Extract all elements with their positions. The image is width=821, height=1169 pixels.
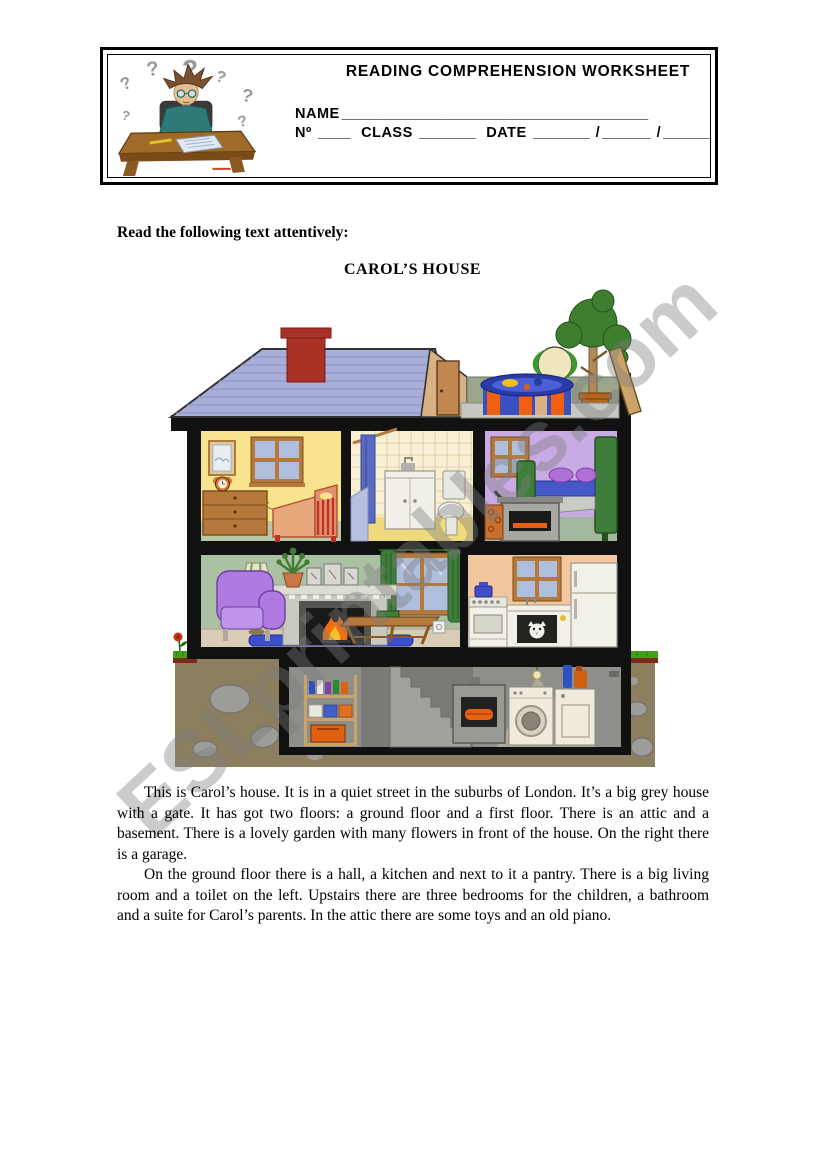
firewood-stack <box>485 505 503 539</box>
desk <box>119 131 255 176</box>
attic-gable <box>421 349 467 417</box>
class-label: CLASS <box>361 125 413 141</box>
bathroom <box>351 429 473 541</box>
red-flower <box>174 633 188 652</box>
date-blank-month: ______ <box>602 125 650 141</box>
wall-divider <box>460 541 468 651</box>
class-blank-line: _______ <box>419 125 475 141</box>
wood-stove <box>495 491 563 541</box>
date-label: DATE <box>486 125 526 141</box>
name-blank-line: ______________________________________ <box>342 106 648 122</box>
date-blank-day: _______ <box>533 125 589 141</box>
number-class-date-row: Nº ____ CLASS _______ DATE _______/_____… <box>295 125 718 141</box>
roof-terrace <box>461 290 641 418</box>
name-label: NAME <box>295 106 340 122</box>
chest-of-drawers <box>203 491 267 535</box>
worksheet-header: ? ? ? ? ? ? ? ? <box>100 47 718 185</box>
question-mark-icon: ? <box>145 58 160 82</box>
sink-counter <box>507 599 571 647</box>
kitchen-window <box>513 557 561 601</box>
living-room <box>201 548 465 647</box>
children-bedroom <box>201 431 341 542</box>
roof <box>171 328 467 417</box>
date-slash: / <box>596 125 601 141</box>
pool-toy <box>534 378 542 386</box>
number-label: Nº <box>295 125 312 141</box>
basement <box>279 659 631 755</box>
artist-credit <box>212 168 230 170</box>
fridge <box>571 563 617 647</box>
pillow <box>549 468 573 482</box>
date-blank-year: ______ <box>663 125 711 141</box>
question-mark-icon: ? <box>213 67 228 87</box>
wall-divider <box>341 431 351 541</box>
power-outlet <box>433 621 445 633</box>
framed-picture <box>209 441 235 475</box>
furnace <box>453 677 505 743</box>
pool-toy <box>524 384 530 390</box>
parents-bedroom <box>485 431 617 541</box>
question-mark-icon: ? <box>236 113 249 132</box>
confused-student-cartoon-icon: ? ? ? ? ? ? ? ? <box>111 56 261 178</box>
pool-toy-duck <box>502 379 518 387</box>
door-knob <box>440 390 443 393</box>
chick-toy <box>560 615 566 621</box>
attic-door <box>437 361 459 415</box>
passage-title: CAROL’S HOUSE <box>117 261 708 279</box>
worksheet-page: ? ? ? ? ? ? ? ? <box>0 0 821 1169</box>
washing-machine <box>509 687 553 745</box>
dryer <box>555 689 595 745</box>
kitchen <box>468 555 617 647</box>
book <box>377 611 399 617</box>
bedroom-window <box>249 437 305 487</box>
question-mark-icon: ? <box>117 72 134 94</box>
date-slash2: / <box>657 125 662 141</box>
reading-passage: This is Carol’s house. It is in a quiet … <box>117 783 709 927</box>
pillow <box>576 468 596 482</box>
name-row: NAME____________________________________… <box>295 106 654 122</box>
living-room-window <box>391 553 453 615</box>
chimney <box>281 328 331 382</box>
header-title: READING COMPREHENSION WORKSHEET <box>318 63 718 81</box>
toolbox <box>311 725 345 742</box>
wall-divider <box>473 431 485 541</box>
number-blank-line: ____ <box>318 125 350 141</box>
paddling-pool <box>481 347 577 415</box>
bathtub <box>351 487 368 541</box>
instruction-text: Read the following text attentively: <box>117 224 349 242</box>
question-mark-icon: ? <box>240 84 255 107</box>
basement-vent <box>609 671 619 677</box>
passage-paragraph: On the ground floor there is a hall, a k… <box>117 865 709 927</box>
house-cross-section-illustration <box>165 285 665 770</box>
passage-paragraph: This is Carol’s house. It is in a quiet … <box>117 783 709 865</box>
question-mark-icon: ? <box>120 107 131 124</box>
light-bulb <box>533 671 541 679</box>
